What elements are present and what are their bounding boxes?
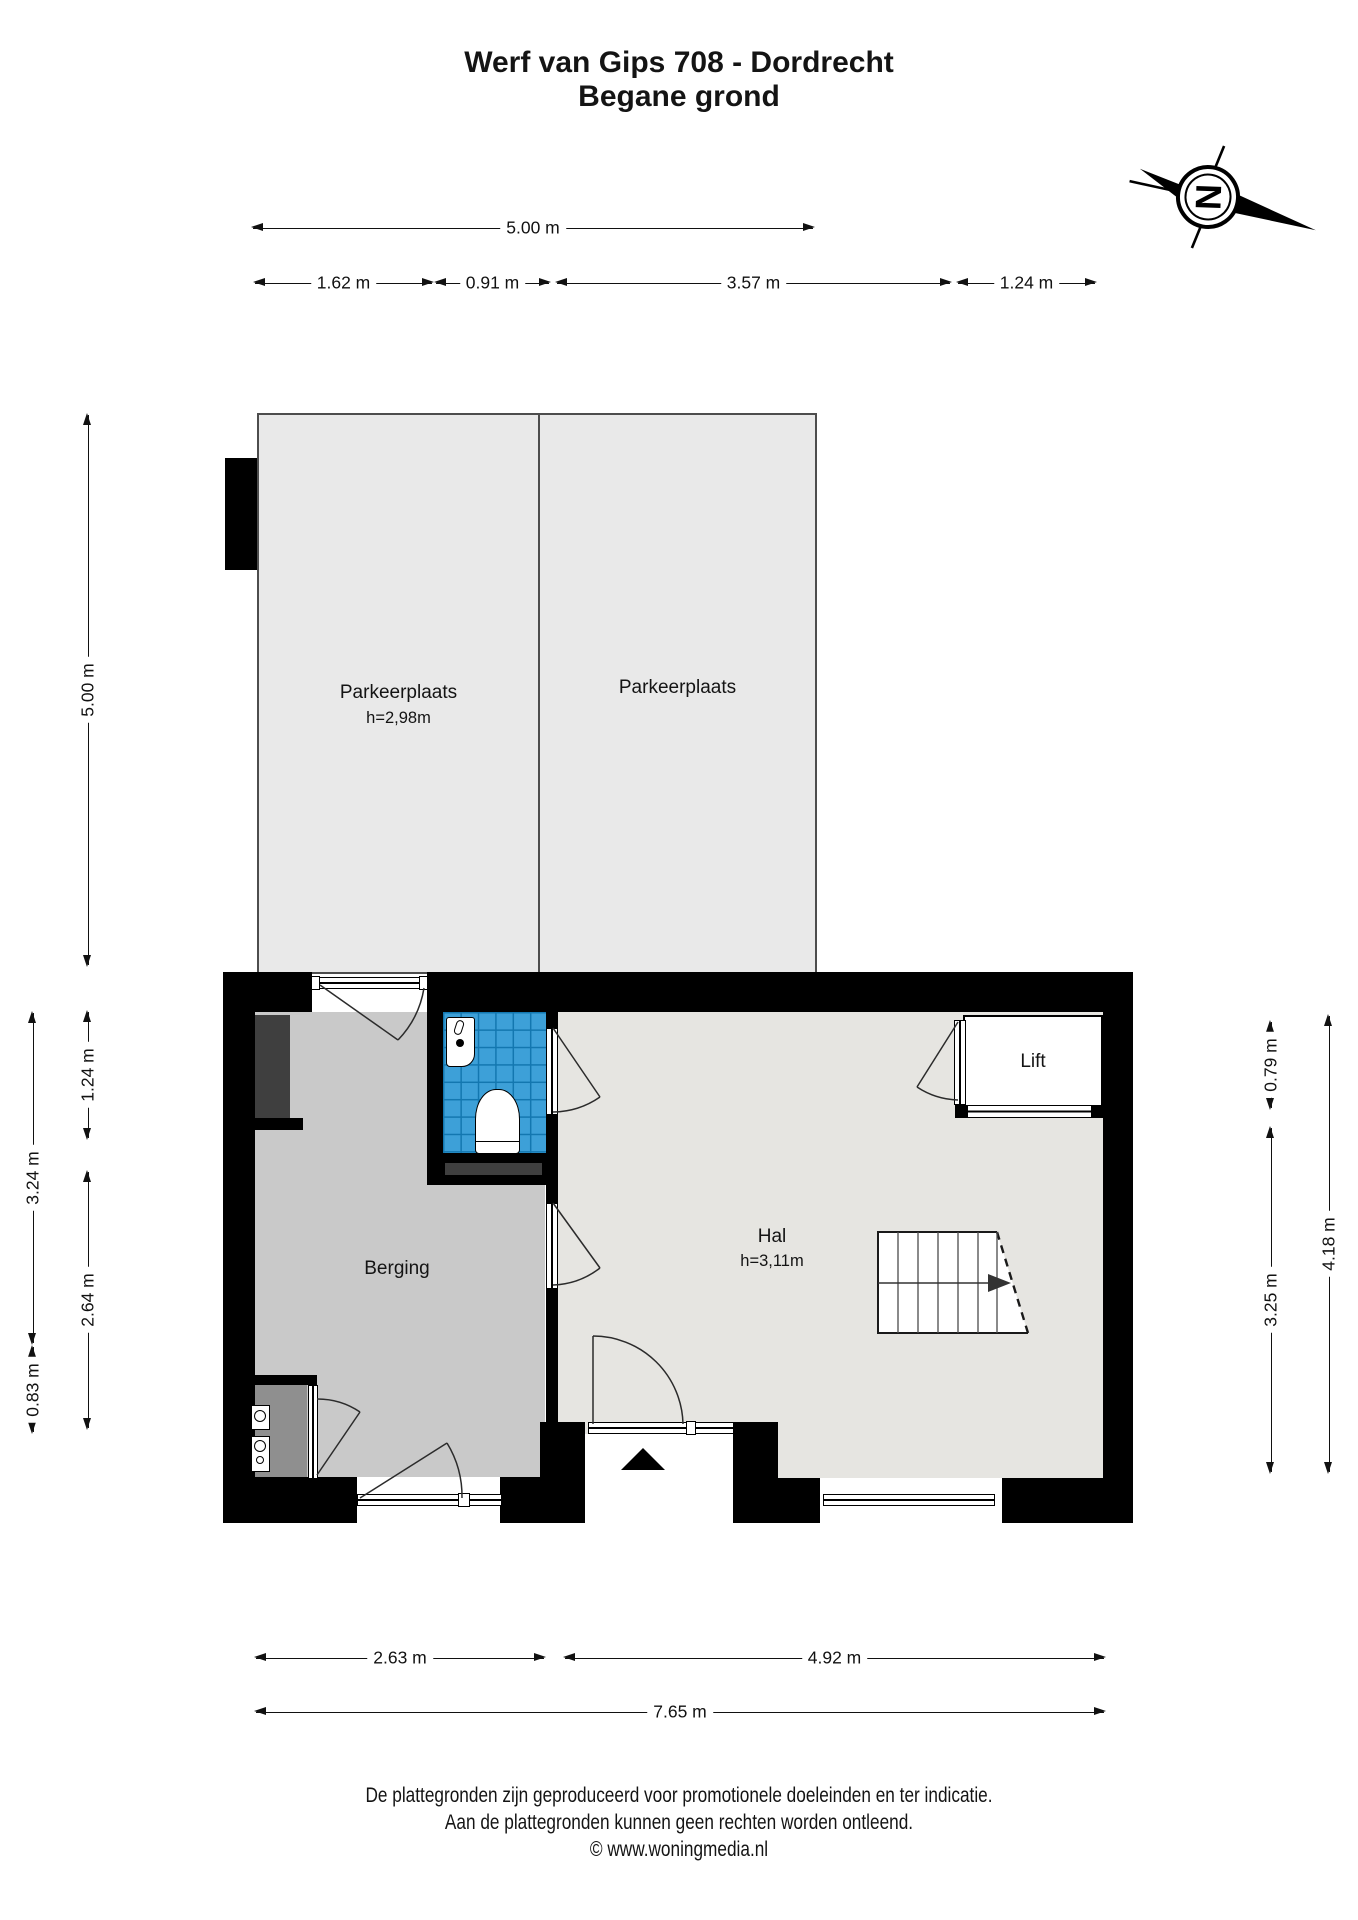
dim-left-outer: 3.24 m xyxy=(33,1013,34,1343)
door-arc xyxy=(317,1399,360,1412)
dim-top-seg3: 3.57 m xyxy=(557,283,950,284)
plan-linework: N xyxy=(0,0,1358,1920)
dim-left-outer-small: 0.83 m xyxy=(33,1347,34,1432)
dim-top-seg4: 1.24 m xyxy=(958,283,1095,284)
dim-left-inner-top: 1.24 m xyxy=(88,1012,89,1138)
dim-bottom-left: 2.63 m xyxy=(256,1658,544,1659)
door-leaf-line xyxy=(553,1028,600,1097)
compass-north-letter: N xyxy=(1188,183,1230,210)
dim-top-seg1: 1.62 m xyxy=(255,283,432,284)
footer-credit: © www.woningmedia.nl xyxy=(122,1838,1236,1862)
dim-right-lift: 0.79 m xyxy=(1271,1022,1272,1108)
compass-icon: N xyxy=(1120,131,1327,269)
door-leaf-line xyxy=(360,1443,447,1498)
dim-top-total: 5.00 m xyxy=(253,228,813,229)
dim-bottom-total: 7.65 m xyxy=(256,1712,1104,1713)
hal-label: Hal xyxy=(662,1226,882,1248)
door-arc xyxy=(593,1336,683,1424)
footer-disclaimer-1: De plattegronden zijn geproduceerd voor … xyxy=(122,1784,1236,1808)
door-leaf-line xyxy=(317,1412,360,1475)
dim-right-outer: 4.18 m xyxy=(1329,1016,1330,1472)
door-arc xyxy=(447,1443,462,1498)
door-arc xyxy=(553,1097,600,1112)
door-leaf-line xyxy=(553,1203,600,1268)
footer-disclaimer-2: Aan de plattegronden kunnen geen rechten… xyxy=(122,1811,1236,1835)
dim-left-inner-bottom: 2.64 m xyxy=(88,1172,89,1428)
entrance-arrow-icon xyxy=(621,1448,665,1470)
dim-right-hal: 3.25 m xyxy=(1271,1128,1272,1472)
door-leaf-line xyxy=(917,1022,958,1087)
stairs-icon xyxy=(878,1232,1028,1333)
dim-top-seg2: 0.91 m xyxy=(436,283,549,284)
berging-label: Berging xyxy=(287,1258,507,1280)
dim-left-parking: 5.00 m xyxy=(88,415,89,965)
hal-height-label: h=3,11m xyxy=(662,1252,882,1271)
door-arc xyxy=(917,1087,958,1100)
door-arc xyxy=(553,1268,600,1285)
dim-bottom-right: 4.92 m xyxy=(565,1658,1104,1659)
floor-plan-page: Werf van Gips 708 - Dordrecht Begane gro… xyxy=(0,0,1358,1920)
door-leaf-line xyxy=(320,985,398,1040)
door-arc xyxy=(398,988,424,1040)
